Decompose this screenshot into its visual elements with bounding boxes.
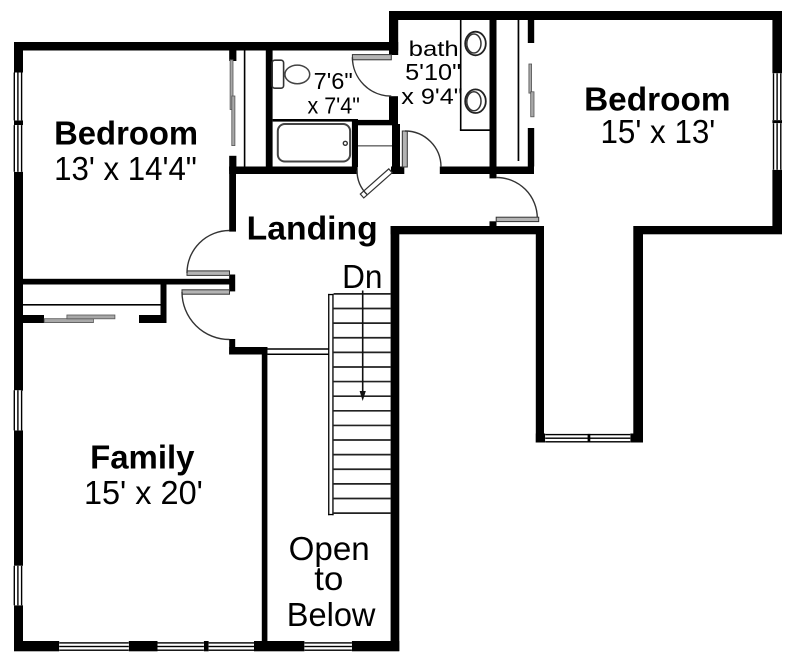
svg-text:5'10": 5'10" xyxy=(405,59,461,85)
svg-text:15' x 13': 15' x 13' xyxy=(601,113,716,150)
svg-text:x 9'4": x 9'4" xyxy=(401,84,462,109)
svg-text:Family: Family xyxy=(90,438,195,475)
svg-text:to: to xyxy=(314,560,343,597)
svg-text:15' x 20': 15' x 20' xyxy=(84,474,203,511)
svg-text:Dn: Dn xyxy=(342,258,382,295)
svg-text:bath: bath xyxy=(409,38,459,61)
svg-text:Bedroom: Bedroom xyxy=(584,80,730,117)
svg-text:Landing: Landing xyxy=(247,209,378,246)
svg-text:13' x 14'4": 13' x 14'4" xyxy=(54,150,197,187)
svg-text:x 7'4": x 7'4" xyxy=(308,93,360,119)
svg-text:Bedroom: Bedroom xyxy=(54,115,198,152)
svg-text:7'6": 7'6" xyxy=(314,68,353,94)
svg-text:Below: Below xyxy=(287,596,376,633)
